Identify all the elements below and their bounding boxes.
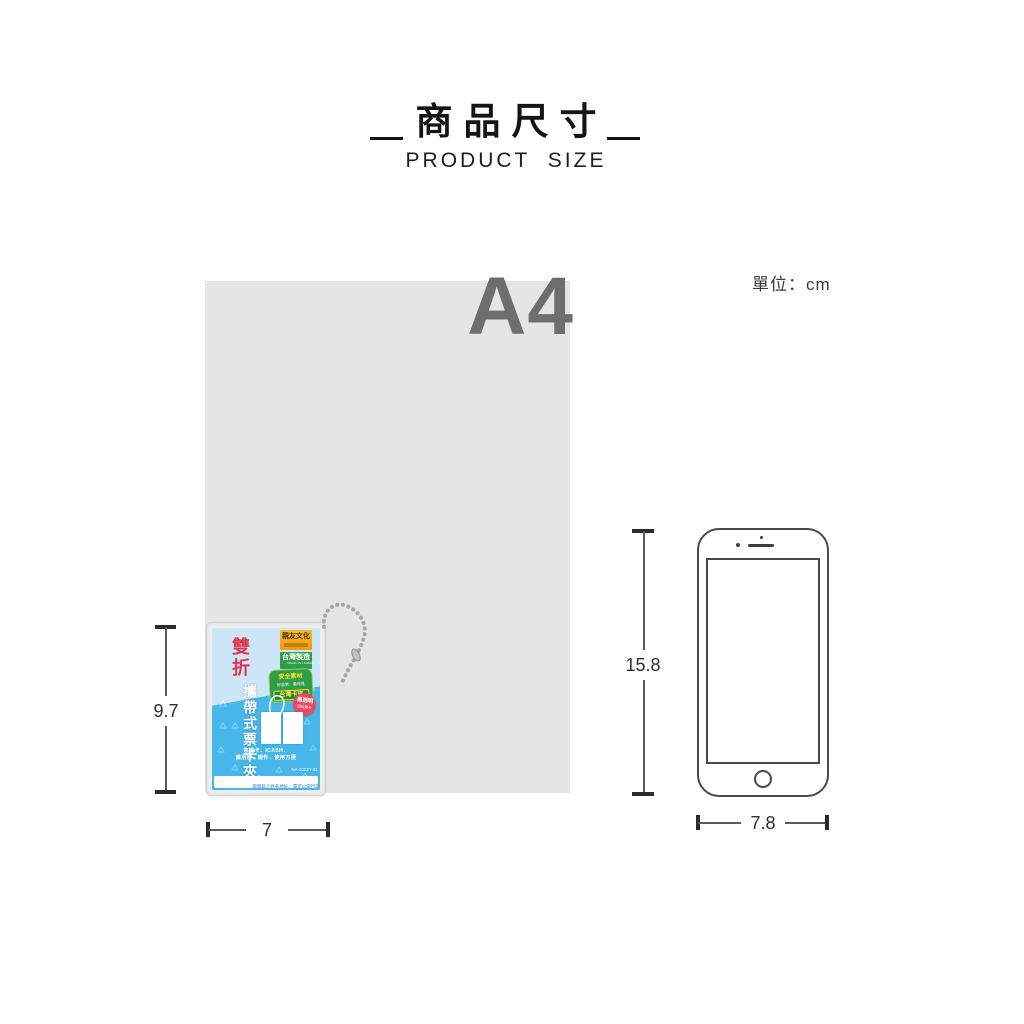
camera-icon <box>736 543 740 547</box>
brand-tag-subline <box>284 643 308 647</box>
home-button-icon <box>754 770 772 788</box>
dimension-cap <box>326 822 330 837</box>
phone-outline <box>697 528 829 797</box>
phone-width-value: 7.8 <box>741 814 785 832</box>
phone-height-value: 15.8 <box>617 650 669 680</box>
page-subtitle: PRODUCT SIZE <box>0 149 1012 173</box>
unit-label: 單位：cm <box>752 270 831 295</box>
product-name-vertical: 攜帶式票卡夾 <box>240 684 260 780</box>
fold-type-label: 雙折 <box>227 637 253 679</box>
seal-line2: 好品質．看得見 <box>277 680 305 687</box>
speaker-icon <box>748 544 774 547</box>
title-right-dash <box>607 137 640 140</box>
proximity-sensor-icon <box>760 536 763 539</box>
card-slot-graphic <box>283 712 303 744</box>
card-usage-line1: 悠遊卡．ICASH． <box>220 747 313 754</box>
ball-chain-icon <box>316 597 380 697</box>
product-size-infographic: 商品尺寸 PRODUCT SIZE 單位：cm A4 雙折 親友文化 <box>0 0 1024 1024</box>
card-width-value: 7 <box>246 821 288 839</box>
page-header: 商品尺寸 PRODUCT SIZE <box>0 100 1012 173</box>
model-number: NA-2002Y-01 <box>292 767 318 772</box>
card-usage-description: 悠遊卡．ICASH． 識別證．證件．使用方便 <box>220 747 313 761</box>
brand-tag: 親友文化 <box>280 630 312 650</box>
card-holder-product: 雙折 親友文化 台灣製造 MADE IN TAIWAN 安全素材 好品質．看得見… <box>206 622 326 796</box>
dimension-cap <box>825 815 829 830</box>
dimension-cap <box>632 792 654 796</box>
card-footer-note: 兩面寫上姓名地址．還可以當行李吊牌 <box>252 781 318 788</box>
page-title: 商品尺寸 <box>0 100 1023 144</box>
dimension-cap <box>155 790 176 794</box>
card-holder-artwork: 雙折 親友文化 台灣製造 MADE IN TAIWAN 安全素材 好品質．看得見… <box>212 628 320 790</box>
title-left-dash <box>370 137 403 140</box>
card-usage-line2: 識別證．證件．使用方便 <box>220 754 313 761</box>
card-slot-graphic <box>261 712 281 744</box>
a4-size-label: A4 <box>467 266 574 348</box>
transparency-badge-line2: 回料薄卡 <box>297 703 311 710</box>
phone-screen <box>706 558 820 764</box>
made-tag-subtext: MADE IN TAIWAN <box>287 662 305 665</box>
card-footer-bar: 兩面寫上姓名地址．還可以當行李吊牌 <box>214 776 318 788</box>
card-height-value: 9.7 <box>144 696 188 726</box>
made-in-taiwan-tag: 台灣製造 MADE IN TAIWAN <box>280 652 312 669</box>
made-tag-text: 台灣製造 <box>280 652 312 662</box>
brand-tag-text: 親友文化 <box>280 630 312 641</box>
